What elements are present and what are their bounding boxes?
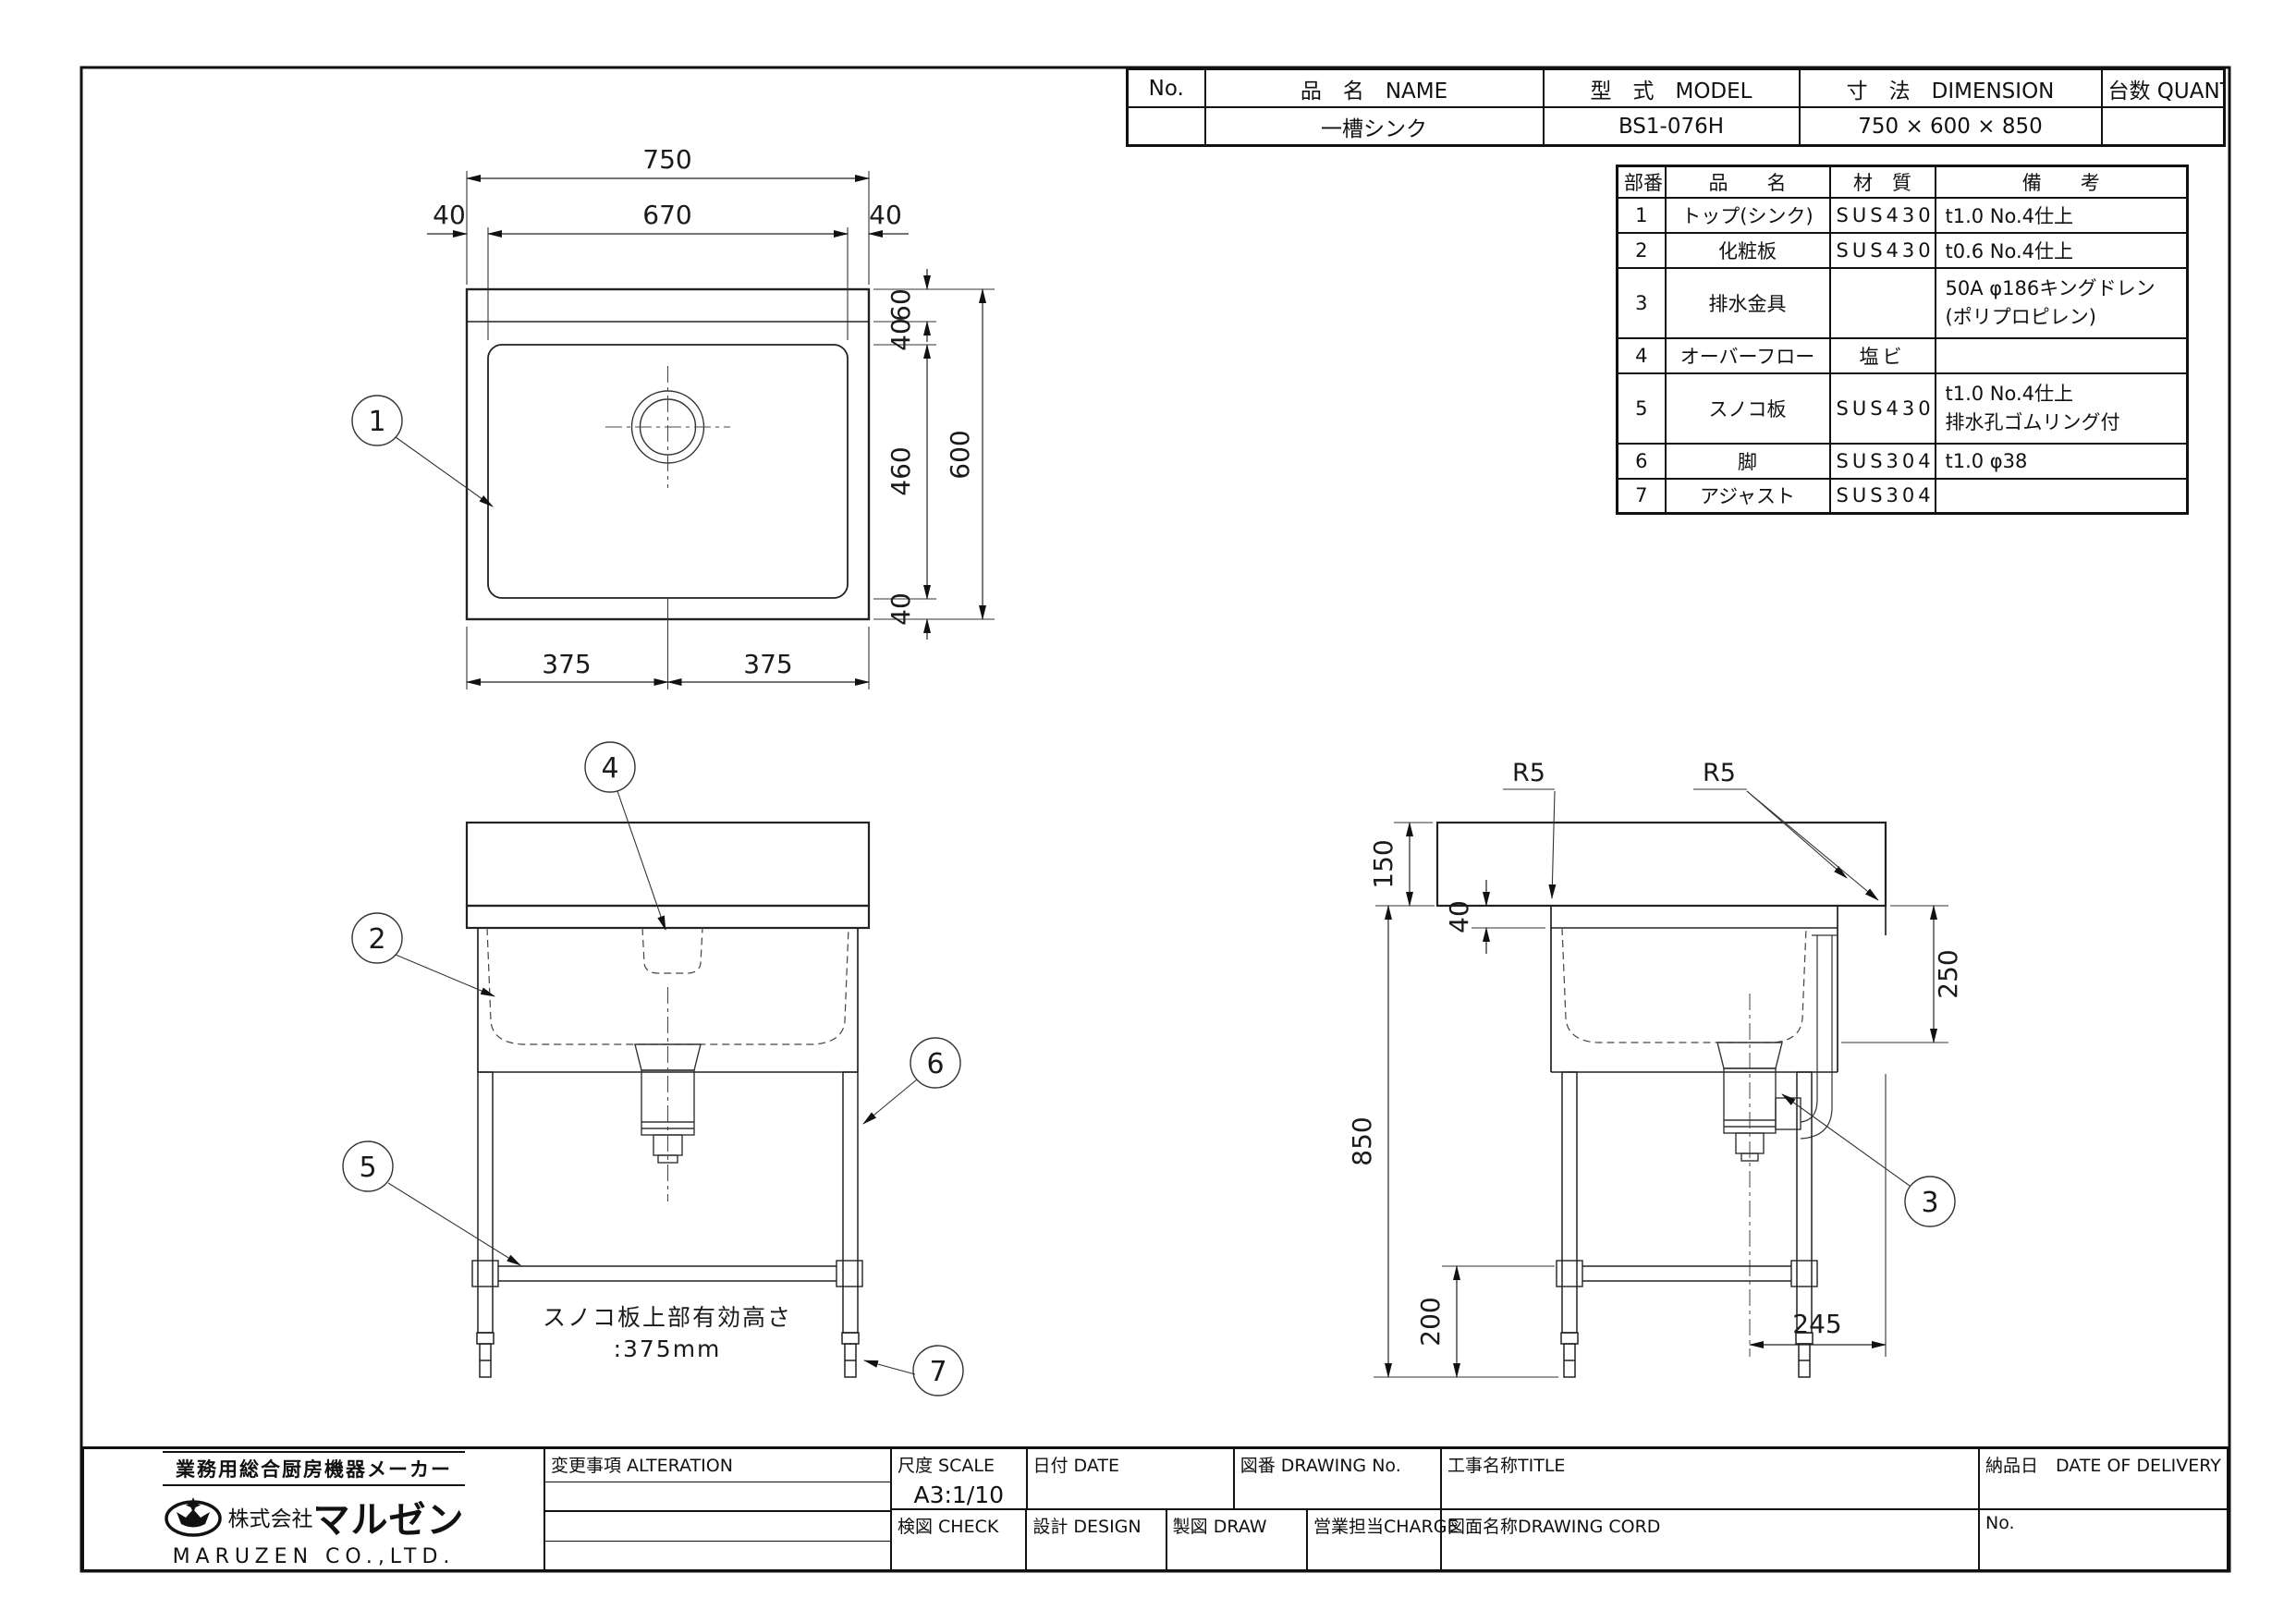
date-label: 日付 DATE — [1028, 1449, 1233, 1480]
radius-label-right: R5 — [1703, 759, 1736, 787]
delivery-label: 納品日 DATE OF DELIVERY — [1980, 1449, 2227, 1480]
col-dimension: 寸 法 DIMENSION — [1800, 69, 2102, 108]
dim-splash-height: 150 — [1368, 839, 1398, 888]
no-cell: No. — [1978, 1510, 2227, 1569]
drain-side — [1717, 1043, 1801, 1161]
part-name: 脚 — [1666, 444, 1830, 479]
project-title-label: 工事名称TITLE — [1442, 1449, 1978, 1480]
draw-cell: 製図 DRAW — [1166, 1510, 1306, 1569]
dim-overall-width: 750 — [642, 144, 691, 175]
part-material: 塩ビ — [1830, 338, 1936, 373]
part-no: 3 — [1618, 268, 1666, 338]
parts-row-2: 2 化粧板 SUS430 t0.6 No.4仕上 — [1618, 233, 2188, 268]
dim-top-thickness: 40 — [1444, 900, 1474, 933]
side-view: 150 40 850 200 250 245 R5 R5 3 — [1347, 759, 1963, 1377]
scale-label: 尺度 SCALE — [892, 1449, 1026, 1480]
table-header-row: No. 品 名 NAME 型 式 MODEL 寸 法 DIMENSION 台数 … — [1128, 69, 2225, 108]
callout-3: 3 — [1921, 1187, 1938, 1219]
design-cell: 設計 DESIGN — [1025, 1510, 1165, 1569]
part-material: SUS304 — [1830, 479, 1936, 514]
maruzen-logo-icon — [164, 1495, 223, 1538]
drawing-no-cell: 図番 DRAWING No. — [1233, 1449, 1440, 1508]
title-delivery-section: 工事名称TITLE 納品日 DATE OF DELIVERY 図面名称DRAWI… — [1440, 1449, 2227, 1569]
plan-view: 750 40 670 40 60 40 460 40 600 375 375 1 — [352, 144, 995, 689]
callout-7: 7 — [929, 1356, 946, 1388]
part-name: アジャスト — [1666, 479, 1830, 514]
dim-gap-top: 40 — [885, 318, 916, 351]
dim-half-left: 375 — [542, 649, 591, 679]
slat-shelf-front — [472, 1261, 862, 1287]
part-name: 排水金具 — [1666, 268, 1830, 338]
shelf-note-line1: スノコ板上部有効高さ — [543, 1304, 792, 1331]
scale-cell: 尺度 SCALE A3:1/10 — [892, 1449, 1026, 1508]
parts-row-3: 3 排水金具 50A φ186キングドレン (ポリプロピレン) — [1618, 268, 2188, 338]
value-model: BS1-076H — [1544, 107, 1800, 146]
alteration-row — [545, 1482, 890, 1510]
backsplash-front — [467, 823, 869, 906]
table-row: 一槽シンク BS1-076H 750 × 600 × 850 — [1128, 107, 2225, 146]
parts-row-6: 6 脚 SUS304 t1.0 φ38 — [1618, 444, 2188, 479]
design-label: 設計 DESIGN — [1027, 1510, 1165, 1541]
maker-logo-cell: 業務用総合厨房機器メーカー 株式会社 マルゼン MARUZEN CO.,LTD. — [84, 1449, 543, 1569]
part-no: 6 — [1618, 444, 1666, 479]
value-name: 一槽シンク — [1205, 107, 1544, 146]
part-remark — [1936, 338, 2188, 373]
part-remark: t0.6 No.4仕上 — [1936, 233, 2188, 268]
part-material: SUS304 — [1830, 444, 1936, 479]
dim-overall-height: 850 — [1347, 1116, 1377, 1165]
part-remark: t1.0 No.4仕上 排水孔ゴムリング付 — [1936, 373, 2188, 444]
part-no: 1 — [1618, 198, 1666, 233]
value-dimension: 750 × 600 × 850 — [1800, 107, 2102, 146]
callout-5: 5 — [359, 1152, 376, 1184]
parts-row-5: 5 スノコ板 SUS430 t1.0 No.4仕上 排水孔ゴムリング付 — [1618, 373, 2188, 444]
scale-date-section: 尺度 SCALE A3:1/10 日付 DATE 図番 DRAWING No. … — [890, 1449, 1440, 1569]
parts-col-remark: 備 考 — [1936, 166, 2188, 198]
col-no: No. — [1128, 69, 1205, 108]
parts-row-4: 4 オーバーフロー 塩ビ — [1618, 338, 2188, 373]
bowl-hidden-side — [1562, 928, 1806, 1043]
part-material: SUS430 — [1830, 198, 1936, 233]
part-remark: 50A φ186キングドレン (ポリプロピレン) — [1936, 268, 2188, 338]
dim-edge-left: 40 — [433, 200, 466, 230]
parts-row-1: 1 トップ(シンク) SUS430 t1.0 No.4仕上 — [1618, 198, 2188, 233]
drawing-name-label: 図面名称DRAWING CORD — [1442, 1510, 1978, 1541]
callout-4: 4 — [601, 752, 618, 785]
part-name: スノコ板 — [1666, 373, 1830, 444]
col-model: 型 式 MODEL — [1544, 69, 1800, 108]
dim-bowl-width: 670 — [642, 200, 691, 230]
parts-col-material: 材 質 — [1830, 166, 1936, 198]
top-band-side — [1437, 823, 1886, 906]
overflow-pipe-side — [1801, 935, 1838, 1139]
callout-1: 1 — [368, 406, 385, 438]
shelf-note-line2: :375mm — [614, 1335, 722, 1362]
dim-half-right: 375 — [743, 649, 792, 679]
title-block: 業務用総合厨房機器メーカー 株式会社 マルゼン MARUZEN CO.,LTD.… — [81, 1446, 2229, 1572]
part-no: 4 — [1618, 338, 1666, 373]
value-no — [1128, 107, 1205, 146]
dim-bowl-depth: 460 — [885, 446, 916, 495]
dim-back-edge: 60 — [885, 288, 916, 322]
part-material: SUS430 — [1830, 233, 1936, 268]
col-name: 品 名 NAME — [1205, 69, 1544, 108]
radius-label-left: R5 — [1512, 759, 1545, 787]
dim-gap-bottom: 40 — [885, 592, 916, 626]
callout-2: 2 — [368, 923, 385, 956]
name-model-table: No. 品 名 NAME 型 式 MODEL 寸 法 DIMENSION 台数 … — [1126, 67, 2226, 147]
date-cell: 日付 DATE — [1026, 1449, 1233, 1508]
drawing-name-cell: 図面名称DRAWING CORD — [1442, 1510, 1978, 1569]
parts-col-name: 品 名 — [1666, 166, 1830, 198]
company-prefix: 株式会社 — [228, 1501, 313, 1532]
part-name: トップ(シンク) — [1666, 198, 1830, 233]
project-title-cell: 工事名称TITLE — [1442, 1449, 1978, 1508]
dim-overall-depth: 600 — [945, 430, 975, 479]
part-material: SUS430 — [1830, 373, 1936, 444]
dim-edge-right: 40 — [869, 200, 902, 230]
alteration-section: 変更事項 ALTERATION — [543, 1449, 890, 1569]
dim-shelf-height: 200 — [1415, 1297, 1446, 1346]
delivery-cell: 納品日 DATE OF DELIVERY — [1978, 1449, 2227, 1508]
check-cell: 検図 CHECK — [892, 1510, 1025, 1569]
company-logo-text: マルゼン — [313, 1490, 465, 1543]
parts-row-7: 7 アジャスト SUS304 — [1618, 479, 2188, 514]
part-name: 化粧板 — [1666, 233, 1830, 268]
part-no: 2 — [1618, 233, 1666, 268]
charge-label: 営業担当CHARGE — [1308, 1510, 1440, 1541]
part-no: 5 — [1618, 373, 1666, 444]
slat-shelf-side — [1557, 1261, 1817, 1287]
alteration-row — [545, 1510, 890, 1540]
value-quantity — [2102, 107, 2225, 146]
part-remark — [1936, 479, 2188, 514]
dim-drain-offset: 245 — [1792, 1309, 1841, 1339]
part-no: 7 — [1618, 479, 1666, 514]
draw-label: 製図 DRAW — [1167, 1510, 1306, 1541]
part-name: オーバーフロー — [1666, 338, 1830, 373]
part-remark: t1.0 φ38 — [1936, 444, 2188, 479]
overflow-hidden-front — [642, 928, 702, 973]
front-view: スノコ板上部有効高さ :375mm 2 4 5 6 7 — [343, 742, 963, 1396]
legs-side — [1561, 1072, 1813, 1377]
parts-header-row: 部番 品 名 材 質 備 考 — [1618, 166, 2188, 198]
callout-6: 6 — [926, 1048, 944, 1080]
check-label: 検図 CHECK — [892, 1510, 1025, 1541]
col-quantity: 台数 QUANTITY — [2102, 69, 2225, 108]
dim-bowl-depth-side: 250 — [1933, 949, 1963, 998]
parts-col-no: 部番 — [1618, 166, 1666, 198]
alteration-row — [545, 1541, 890, 1569]
part-remark: t1.0 No.4仕上 — [1936, 198, 2188, 233]
drawing-sheet: 750 40 670 40 60 40 460 40 600 375 375 1 — [0, 0, 2296, 1622]
scale-value: A3:1/10 — [892, 1482, 1026, 1508]
company-en: MARUZEN CO.,LTD. — [173, 1545, 456, 1568]
parts-table: 部番 品 名 材 質 備 考 1 トップ(シンク) SUS430 t1.0 No… — [1616, 165, 2189, 515]
alteration-label: 変更事項 ALTERATION — [545, 1449, 890, 1482]
counter-band-front — [467, 906, 869, 928]
part-material — [1830, 268, 1936, 338]
no-label: No. — [1980, 1510, 2227, 1536]
drawing-no-label: 図番 DRAWING No. — [1235, 1449, 1440, 1480]
charge-cell: 営業担当CHARGE — [1306, 1510, 1440, 1569]
maker-tagline: 業務用総合厨房機器メーカー — [163, 1451, 465, 1486]
